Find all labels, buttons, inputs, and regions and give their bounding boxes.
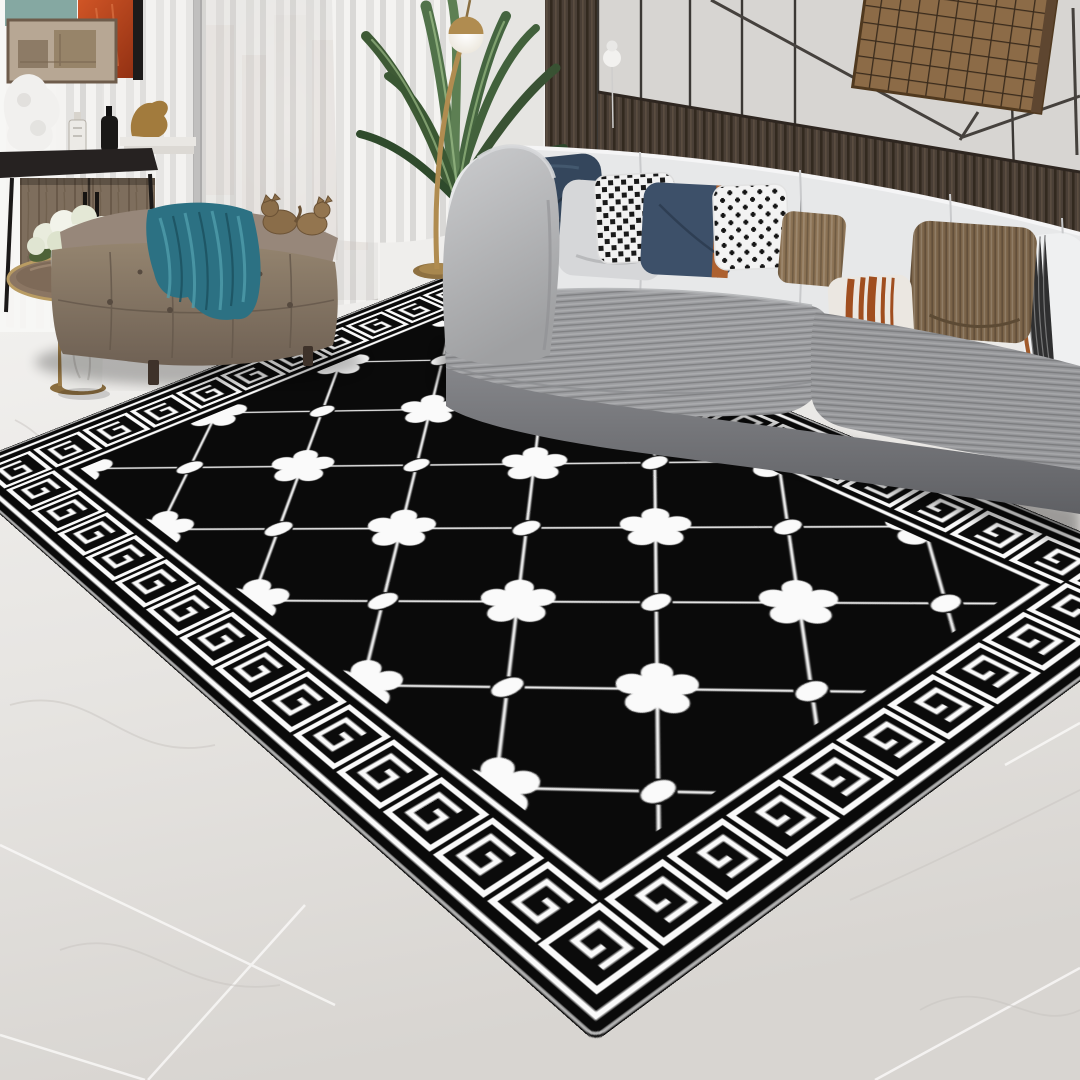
pillow-bw-cross bbox=[713, 184, 790, 271]
living-room-scene: Modern living room product photo: a larg… bbox=[0, 0, 1080, 1080]
pillow-corduroy-small bbox=[777, 210, 847, 287]
pillow-corduroy-large bbox=[906, 220, 1038, 344]
sofa-arm bbox=[443, 146, 560, 364]
foreground-layer bbox=[0, 0, 1080, 1080]
lamp-cap bbox=[449, 17, 484, 35]
sofa bbox=[443, 146, 1080, 514]
